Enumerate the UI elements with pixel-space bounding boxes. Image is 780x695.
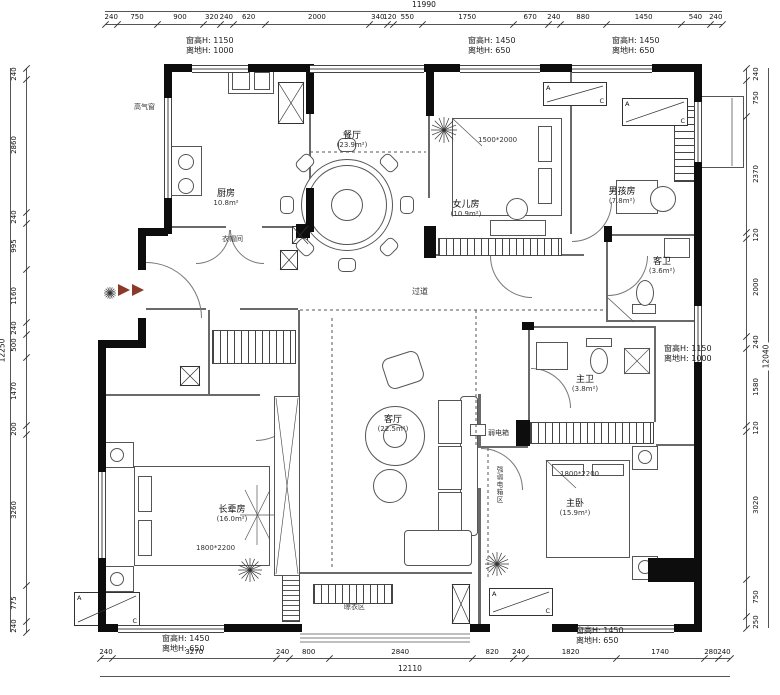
- partition-wall: [428, 114, 430, 198]
- wall-segment: [552, 624, 578, 632]
- floor-plan-canvas: ACACACAC24075090032024062020003401205501…: [0, 0, 780, 695]
- coffee-table-small: [373, 469, 407, 503]
- dimension-label: 240: [696, 13, 736, 21]
- armchair: [380, 349, 426, 391]
- wardrobe-cloakroom: [212, 330, 296, 364]
- partition-wall: [168, 226, 226, 228]
- dimension-total-right: 12040: [761, 343, 770, 371]
- annotation-label: 高气窗: [134, 102, 155, 112]
- dimension-label: 2000: [297, 13, 337, 21]
- wall-segment: [296, 224, 310, 238]
- lamp: [638, 450, 652, 464]
- room-name: 长辈房: [217, 505, 248, 515]
- dimension-label: 240: [704, 648, 744, 656]
- dimension-label: 2000: [752, 267, 760, 307]
- dimension-label: 550: [387, 13, 427, 21]
- window: [192, 65, 248, 73]
- annotation-label: 晾衣区: [344, 602, 365, 612]
- dimension-tick: [727, 655, 734, 662]
- window-height-line: 窗高H: 1150: [664, 344, 712, 354]
- annotation-label: 过道: [412, 286, 428, 297]
- partition-wall: [608, 234, 696, 236]
- partition-wall: [300, 572, 472, 574]
- window-height-line: 窗高H: 1450: [162, 634, 210, 644]
- window: [460, 65, 540, 73]
- dimension-total-line: [100, 676, 730, 677]
- partition-wall: [478, 394, 481, 446]
- window-height-line: 窗高H: 1450: [468, 36, 516, 46]
- window-height-note: 窗高H: 1450离地H: 650: [576, 626, 624, 646]
- pillow: [138, 476, 152, 512]
- dimension-label: 500: [10, 325, 18, 365]
- section-letter-a: A: [625, 100, 629, 108]
- daughter-room-door: [490, 256, 532, 298]
- wardrobe-daughter: [438, 238, 562, 256]
- sofa-seat: [438, 446, 462, 490]
- dimension-label: 240: [10, 54, 18, 94]
- partition-wall: [98, 394, 260, 396]
- bay-window-section-marker: AC: [622, 98, 688, 126]
- dimension-label: 2370: [752, 154, 760, 194]
- wall-segment: [694, 64, 702, 102]
- window-sill-line: 离地H: 1000: [186, 46, 234, 56]
- weak-current-box: [470, 424, 486, 436]
- partition-wall: [606, 320, 696, 322]
- window-height-line: 窗高H: 1450: [612, 36, 660, 46]
- dimension-label: 1740: [640, 648, 680, 656]
- dimension-label: 750: [752, 78, 760, 118]
- dimension-label: 240: [86, 648, 126, 656]
- dimension-label: 250: [752, 602, 760, 642]
- room-name: 厨房: [213, 189, 238, 199]
- room-name: 餐厅: [337, 131, 368, 141]
- room-name: 女儿房: [451, 200, 482, 210]
- dimension-tick: [719, 21, 726, 28]
- bay-window-section-marker: AC: [489, 588, 553, 616]
- column-hatch-box: [180, 366, 200, 386]
- section-letter-a: A: [77, 594, 81, 602]
- sofa-back: [460, 396, 478, 536]
- window-sill-line: 离地H: 650: [468, 46, 516, 56]
- room-area: (22.5m²): [378, 425, 409, 433]
- dimension-label: 120: [752, 408, 760, 448]
- partition-wall: [298, 310, 300, 396]
- window: [164, 98, 172, 198]
- wall-segment: [522, 322, 534, 330]
- boy-chair: [650, 186, 676, 212]
- window-height-note: 窗高H: 1150离地H: 1000: [664, 344, 712, 364]
- dimension-label: 995: [10, 226, 18, 266]
- partition-wall: [656, 444, 696, 446]
- plan-area: ACACACAC24075090032024062020003401205501…: [0, 0, 780, 695]
- wall-segment: [470, 624, 490, 632]
- wall-segment: [224, 624, 302, 632]
- wall-segment: [164, 64, 172, 98]
- dimension-label: 800: [289, 648, 329, 656]
- pillow: [538, 168, 552, 204]
- dimension-label: 240: [10, 606, 18, 646]
- lamp: [110, 448, 124, 462]
- section-letter-c: C: [132, 617, 137, 625]
- wall-segment: [426, 64, 434, 116]
- partition-wall: [528, 326, 656, 328]
- annotation-label: 1800*2200: [196, 544, 235, 552]
- room-area: (7.8m²): [608, 197, 635, 205]
- bay-window-section-marker: AC: [543, 82, 607, 106]
- master-bath-door: [531, 368, 571, 408]
- room-name: 客卫: [649, 257, 675, 267]
- master-toilet-bowl: [590, 348, 608, 374]
- room-area: 10.8m²: [213, 199, 238, 207]
- kitchen-sink-basin: [232, 72, 250, 90]
- wall-segment: [694, 424, 702, 632]
- room-area: (23.9m²): [337, 141, 368, 149]
- column-hatch-box: [280, 250, 298, 270]
- dining-chair: [293, 151, 316, 174]
- dimension-total-left: 12250: [0, 337, 6, 365]
- entry-door: [146, 262, 202, 318]
- dimension-tick: [743, 625, 750, 632]
- window-height-note: 窗高H: 1150离地H: 1000: [186, 36, 234, 56]
- room-area: (3.8m²): [572, 385, 598, 393]
- tv-cabinet: [274, 396, 300, 576]
- stove-burner: [178, 178, 194, 194]
- guest-bath-sink: [664, 238, 690, 258]
- annotation-label: 1800*2200: [560, 470, 599, 478]
- wall-segment: [694, 162, 702, 306]
- fridge-hatch-box: [278, 82, 304, 124]
- room-area: (10.9m²): [451, 210, 482, 218]
- dimension-total-line: [105, 11, 722, 12]
- dimension-label: 240: [499, 648, 539, 656]
- room-name: 主卧: [560, 499, 591, 509]
- window-height-line: 窗高H: 1150: [186, 36, 234, 46]
- room-name: 主卫: [572, 375, 598, 385]
- dimension-line: [100, 658, 730, 659]
- dimension-total-top: 11990: [410, 0, 438, 9]
- window-sill-line: 离地H: 650: [162, 644, 210, 654]
- dimension-label: 240: [752, 322, 760, 362]
- guest-toilet-bowl: [636, 280, 654, 306]
- wall-segment: [98, 348, 106, 472]
- daughter-chair: [506, 198, 528, 220]
- wall-segment: [540, 64, 572, 72]
- dimension-label: 120: [752, 215, 760, 255]
- window-height-line: 窗高H: 1450: [576, 626, 624, 636]
- room-label: 客厅(22.5m²): [378, 415, 409, 433]
- lamp: [110, 572, 124, 586]
- pillow: [138, 520, 152, 556]
- window: [694, 102, 702, 162]
- wall-segment: [98, 624, 118, 632]
- dining-chair: [378, 236, 401, 259]
- dimension-tick: [23, 629, 30, 636]
- section-letter-a: A: [492, 590, 496, 598]
- dimension-label: 750: [117, 13, 157, 21]
- window-sill-line: 离地H: 1000: [664, 354, 712, 364]
- window-height-note: 窗高H: 1450离地H: 650: [612, 36, 660, 56]
- dimension-label: 1750: [447, 13, 487, 21]
- wall-segment: [248, 64, 310, 72]
- room-label: 厨房10.8m²: [213, 189, 238, 207]
- window: [98, 472, 106, 558]
- room-area: (3.6m²): [649, 267, 675, 275]
- room-label: 客卫(3.6m²): [649, 257, 675, 275]
- dimension-label: 2840: [380, 648, 420, 656]
- room-area: (15.9m²): [560, 509, 591, 517]
- daughter-desk: [490, 220, 546, 236]
- wall-segment: [138, 236, 146, 270]
- dimension-line: [26, 68, 27, 632]
- annotation-label: 衣帽间: [222, 234, 243, 244]
- pillow: [538, 126, 552, 162]
- column-hatch-box: [452, 584, 470, 624]
- room-label: 女儿房(10.9m²): [451, 200, 482, 218]
- dimension-label: 1820: [551, 648, 591, 656]
- room-label: 餐厅(23.9m²): [337, 131, 368, 149]
- window-sill-line: 离地H: 650: [576, 636, 624, 646]
- room-label: 主卧(15.9m²): [560, 499, 591, 517]
- room-name: 男孩房: [608, 187, 635, 197]
- dining-table-center: [331, 189, 363, 221]
- wall-segment: [424, 226, 436, 258]
- dimension-label: 3020: [752, 485, 760, 525]
- window-height-note: 窗高H: 1450离地H: 650: [162, 634, 210, 654]
- dining-chair: [400, 196, 414, 214]
- dining-chair: [338, 258, 356, 272]
- sofa-chaise: [404, 530, 472, 566]
- dining-chair: [280, 196, 294, 214]
- bay-window-section-marker: AC: [74, 592, 140, 626]
- partition-wall: [654, 326, 656, 422]
- partition-wall: [478, 488, 481, 624]
- dimension-label: 620: [229, 13, 269, 21]
- window: [118, 625, 224, 633]
- room-label: 主卫(3.8m²): [572, 375, 598, 393]
- wall-segment: [604, 226, 612, 242]
- window-sill-line: 离地H: 650: [612, 46, 660, 56]
- kitchen-sink-basin: [254, 72, 270, 90]
- dimension-label: 880: [563, 13, 603, 21]
- room-label: 男孩房(7.8m²): [608, 187, 635, 205]
- section-letter-c: C: [599, 97, 604, 105]
- stove-burner: [178, 154, 194, 170]
- partition-wall: [528, 326, 530, 422]
- dimension-label: 2860: [10, 125, 18, 165]
- master-bath-sink: [536, 342, 568, 370]
- window: [572, 65, 652, 73]
- dimension-label: 1470: [10, 371, 18, 411]
- annotation-label: 强弱电箱区: [494, 466, 504, 504]
- dimension-label: 1450: [624, 13, 664, 21]
- partition-wall: [240, 308, 298, 310]
- master-toilet-tank: [586, 338, 612, 347]
- room-area: (16.0m²): [217, 515, 248, 523]
- wall-segment: [694, 362, 702, 424]
- window-height-note: 窗高H: 1450离地H: 650: [468, 36, 516, 56]
- section-letter-c: C: [545, 607, 550, 615]
- sofa-seat: [438, 400, 462, 444]
- washing-machine: [624, 348, 650, 374]
- dimension-line: [105, 24, 722, 25]
- annotation-label: 弱电箱: [488, 428, 509, 438]
- section-letter-c: C: [680, 117, 685, 125]
- room-name: 客厅: [378, 415, 409, 425]
- room-label: 长辈房(16.0m²): [217, 505, 248, 523]
- wall-segment: [98, 340, 144, 348]
- wall-segment: [138, 228, 168, 236]
- wardrobe-master: [530, 422, 654, 444]
- section-letter-a: A: [546, 84, 550, 92]
- window: [310, 65, 424, 73]
- wall-segment: [648, 558, 696, 582]
- dimension-total-bottom: 12110: [396, 664, 424, 673]
- dimension-label: 1580: [752, 367, 760, 407]
- dimension-label: 200: [10, 409, 18, 449]
- wall-segment: [516, 420, 530, 446]
- dining-chair: [378, 151, 401, 174]
- partition-wall: [208, 310, 210, 396]
- dimension-label: 3260: [10, 490, 18, 530]
- bay-window: [700, 96, 744, 168]
- wall-segment: [98, 558, 106, 632]
- annotation-label: 1500*2000: [478, 136, 517, 144]
- drying-rack: [313, 584, 393, 604]
